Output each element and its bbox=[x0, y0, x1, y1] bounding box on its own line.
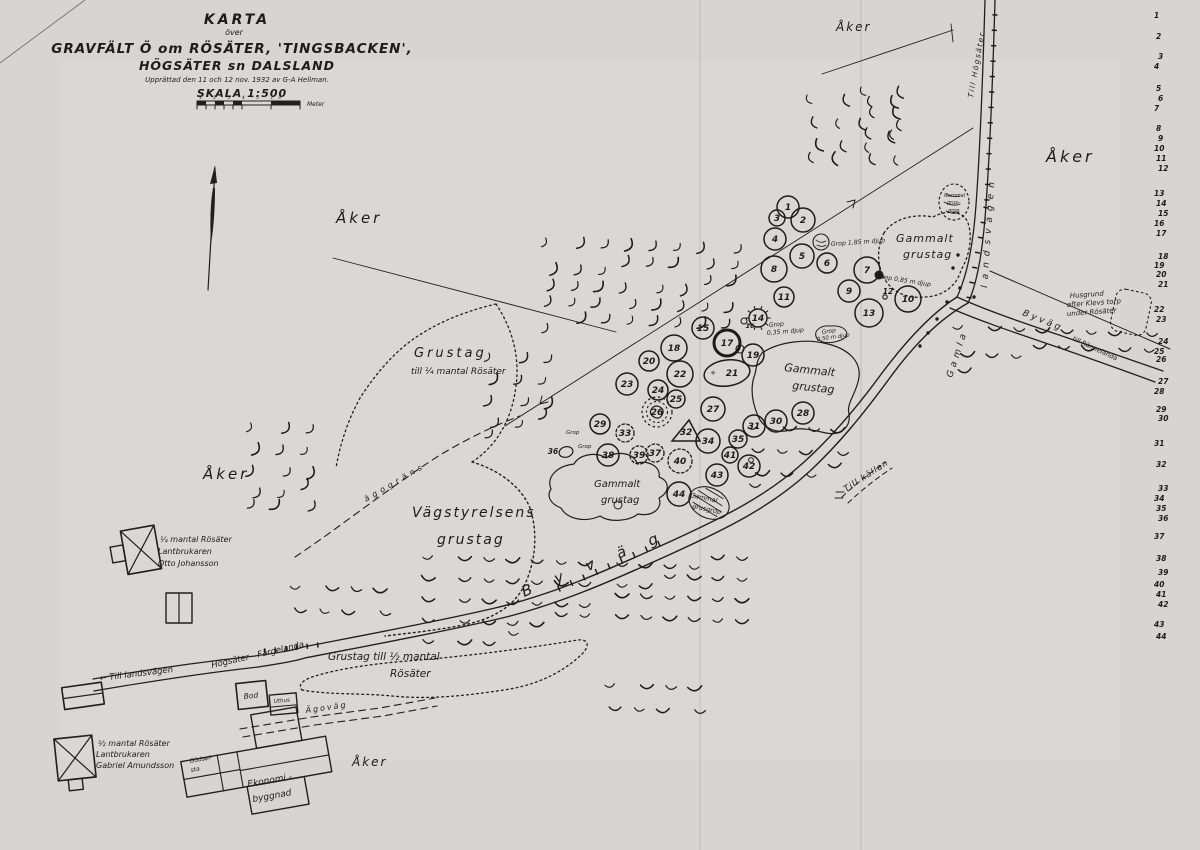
road-surface-dot bbox=[926, 331, 929, 334]
grave-number: 7 bbox=[864, 266, 871, 276]
grave-number: 23 bbox=[621, 380, 634, 390]
grave-number: 32 bbox=[680, 428, 693, 438]
legend-number: 27 bbox=[1158, 377, 1169, 386]
road-surface-dot bbox=[956, 253, 959, 256]
grave-number: 18 bbox=[668, 344, 681, 354]
grave-number: 11 bbox=[778, 293, 791, 303]
legend-number: 34 bbox=[1154, 494, 1164, 503]
map-label: grustag bbox=[903, 248, 952, 261]
grave-number: 31 bbox=[748, 422, 761, 432]
map-label: till ¼ mantal Rösäter bbox=[411, 367, 507, 377]
grave-number: 39 bbox=[633, 451, 646, 461]
map-label: Åker bbox=[351, 754, 387, 769]
legend-number: 22 bbox=[1154, 305, 1164, 314]
legend-number: 32 bbox=[1156, 460, 1166, 469]
legend-number: 41 bbox=[1156, 590, 1166, 599]
road-tick bbox=[973, 267, 977, 268]
map-label: Rösäter bbox=[390, 668, 431, 680]
map-label: KARTA bbox=[204, 12, 270, 28]
grave-plus-mark: + bbox=[710, 369, 716, 377]
grave-number: 43 bbox=[710, 471, 724, 481]
grave-number: 5 bbox=[799, 252, 805, 262]
legend-number: 8 bbox=[1156, 124, 1161, 133]
legend-number: 30 bbox=[1158, 414, 1168, 423]
map-label: Åker bbox=[335, 208, 382, 227]
grave-number: 27 bbox=[707, 405, 720, 415]
grave-number: 6 bbox=[824, 259, 830, 269]
road-tick bbox=[984, 207, 988, 208]
map-label: Otto Johansson bbox=[158, 559, 219, 568]
map-label: Åker bbox=[1045, 147, 1095, 166]
legend-number: 12 bbox=[1158, 164, 1168, 173]
road-surface-dot bbox=[958, 286, 961, 289]
road-surface-dot bbox=[918, 344, 921, 347]
grave-number: 38 bbox=[602, 451, 615, 461]
legend-number: 29 bbox=[1156, 405, 1166, 414]
legend-number: 9 bbox=[1158, 134, 1163, 143]
grave-number: 35 bbox=[732, 435, 745, 445]
legend-number: 44 bbox=[1156, 632, 1166, 641]
grave-number: 15 bbox=[697, 324, 710, 334]
legend-number: 3 bbox=[1158, 52, 1163, 61]
map-label: grustag bbox=[601, 495, 639, 506]
grave-number: 10 bbox=[902, 295, 915, 305]
legend-number: 13 bbox=[1154, 189, 1164, 198]
map-label: Bod bbox=[243, 690, 259, 700]
grave-number: 22 bbox=[674, 370, 687, 380]
map-label: grop bbox=[948, 208, 959, 214]
map-label: GRAVFÄLT Ö om RÖSÄTER, 'TINGSBACKEN', bbox=[51, 39, 412, 57]
legend-number: 15 bbox=[1158, 209, 1168, 218]
grave-number: 29 bbox=[594, 420, 607, 430]
paper-light-area bbox=[60, 60, 1120, 760]
grave-number: 24 bbox=[652, 386, 665, 396]
map-label: ¼ mantal Rösäter bbox=[160, 535, 232, 544]
legend-number: 17 bbox=[1156, 229, 1167, 238]
map-label: över bbox=[225, 28, 244, 37]
grave-number: 17 bbox=[721, 339, 734, 349]
legend-number: 37 bbox=[1154, 532, 1165, 541]
map-label: Lantbrukaren bbox=[158, 547, 212, 556]
legend-number: 28 bbox=[1154, 387, 1164, 396]
grave-number: 40 bbox=[673, 457, 687, 467]
grave-number: 26 bbox=[651, 408, 664, 418]
map-label: Grop bbox=[578, 444, 592, 450]
legend-number: 31 bbox=[1154, 439, 1164, 448]
legend-number: 39 bbox=[1158, 568, 1168, 577]
grave-number: 30 bbox=[770, 417, 783, 427]
map-label: Gammalt bbox=[896, 232, 954, 245]
map-label: Grop bbox=[566, 430, 580, 436]
legend-number: 23 bbox=[1156, 315, 1166, 324]
map-label: grustag bbox=[437, 532, 505, 548]
grave-number: 28 bbox=[797, 409, 810, 419]
legend-number: 7 bbox=[1154, 104, 1160, 113]
map-label: Upprättad den 11 och 12 nov. 1932 av G-A… bbox=[145, 76, 329, 84]
grave-number: 8 bbox=[771, 265, 777, 275]
legend-number: 6 bbox=[1158, 94, 1163, 103]
map-canvas: 123456789101112131415161718192021+222324… bbox=[0, 0, 1200, 850]
map-label: Åker bbox=[202, 464, 249, 483]
grave-number: 9 bbox=[846, 287, 852, 297]
map-label: Grustag bbox=[414, 346, 487, 361]
legend-number: 5 bbox=[1156, 84, 1161, 93]
legend-number: 35 bbox=[1156, 504, 1166, 513]
legend-number: 1 bbox=[1154, 11, 1159, 20]
legend-number: 16 bbox=[1154, 219, 1164, 228]
map-label: HÖGSÄTER sn DALSLAND bbox=[139, 58, 335, 73]
road-tick bbox=[970, 282, 974, 283]
grave-number: 2 bbox=[800, 216, 806, 226]
map-label: Lantbrukaren bbox=[96, 750, 150, 759]
map-label: Gammal bbox=[944, 193, 966, 199]
road-tick bbox=[967, 297, 971, 298]
legend-number: 14 bbox=[1156, 199, 1166, 208]
road-tick bbox=[976, 252, 980, 253]
grave-number: 44 bbox=[672, 490, 686, 500]
road-surface-dot bbox=[945, 300, 948, 303]
grave-number: 3 bbox=[774, 214, 780, 224]
grave-number: 12 bbox=[883, 287, 893, 296]
legend-number: 10 bbox=[1154, 144, 1164, 153]
map-label: Gammalt bbox=[594, 479, 641, 490]
grave-number: 16 bbox=[745, 322, 755, 330]
road-tick bbox=[981, 222, 985, 223]
grave-number: 36 bbox=[548, 447, 558, 456]
map-label: 1 2 3 4 5 10 bbox=[199, 95, 286, 101]
legend-number: 26 bbox=[1156, 355, 1166, 364]
map-label: Grustag till ½ mantal bbox=[328, 651, 440, 663]
grave-number: 4 bbox=[771, 235, 778, 245]
legend-number: 40 bbox=[1154, 580, 1164, 589]
road-tick bbox=[978, 237, 982, 238]
grave-number: 25 bbox=[670, 395, 683, 405]
map-label: Meter bbox=[307, 101, 325, 108]
legend-number: 36 bbox=[1158, 514, 1168, 523]
legend-number: 20 bbox=[1156, 270, 1166, 279]
map-label: Åker bbox=[835, 19, 871, 34]
legend-number: 21 bbox=[1158, 280, 1168, 289]
legend-number: 33 bbox=[1158, 484, 1168, 493]
grave-number: 13 bbox=[863, 309, 876, 319]
grave-number: 20 bbox=[643, 357, 656, 367]
map-label: Gabriel Amundsson bbox=[96, 761, 174, 770]
grave-number: 34 bbox=[702, 437, 715, 447]
road-surface-dot bbox=[951, 266, 954, 269]
legend-number: 19 bbox=[1154, 261, 1164, 270]
legend-number: 18 bbox=[1158, 252, 1168, 261]
legend-number: 11 bbox=[1156, 154, 1166, 163]
legend-number: 4 bbox=[1154, 62, 1159, 71]
legend-number: 43 bbox=[1154, 620, 1164, 629]
grave-number: 41 bbox=[723, 451, 737, 461]
grave-number: 42 bbox=[742, 462, 756, 472]
grave-number: 33 bbox=[619, 429, 632, 439]
map-label: grus- bbox=[947, 200, 960, 206]
map-label: Vägstyrelsens bbox=[412, 505, 536, 521]
road-surface-dot bbox=[935, 317, 938, 320]
road-surface-dot bbox=[972, 295, 975, 298]
grave-number: 37 bbox=[649, 449, 662, 459]
scanned-map-page: 123456789101112131415161718192021+222324… bbox=[0, 0, 1200, 850]
legend-number: 38 bbox=[1156, 554, 1166, 563]
grave-number: 19 bbox=[747, 351, 760, 361]
map-label: ½ mantal Rösäter bbox=[98, 739, 170, 748]
legend-number: 42 bbox=[1158, 600, 1168, 609]
grave-number: 21 bbox=[726, 369, 739, 379]
legend-number: 24 bbox=[1158, 337, 1168, 346]
legend-number: 2 bbox=[1156, 32, 1161, 41]
grave-number: 1 bbox=[785, 203, 791, 213]
